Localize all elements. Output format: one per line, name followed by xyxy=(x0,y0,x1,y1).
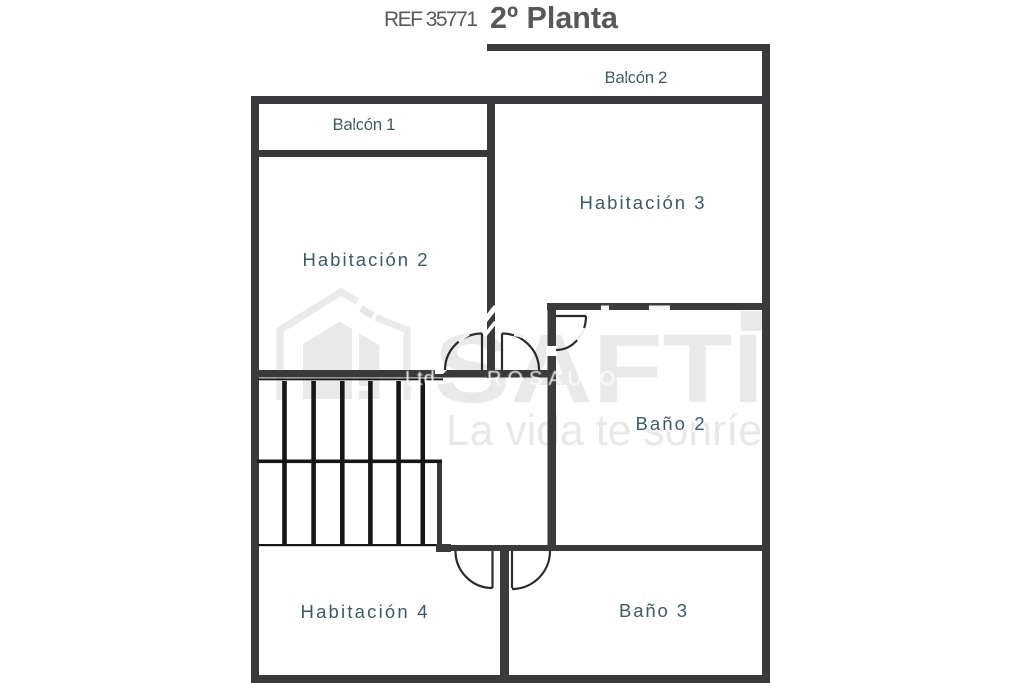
svg-text:ROSAU O: ROSAU O xyxy=(487,368,621,390)
svg-text:Baño 3: Baño 3 xyxy=(619,600,687,621)
svg-text:Balcón 2: Balcón 2 xyxy=(605,68,668,87)
svg-text:REF 35771: REF 35771 xyxy=(384,8,478,31)
svg-text:Balcón 1: Balcón 1 xyxy=(333,115,396,134)
svg-text:2º Planta: 2º Planta xyxy=(490,0,619,35)
svg-text:Baño 2: Baño 2 xyxy=(636,413,705,434)
svg-text:Ltd: Ltd xyxy=(405,368,436,390)
svg-text:La vida te sonríe: La vida te sonríe xyxy=(446,406,762,455)
